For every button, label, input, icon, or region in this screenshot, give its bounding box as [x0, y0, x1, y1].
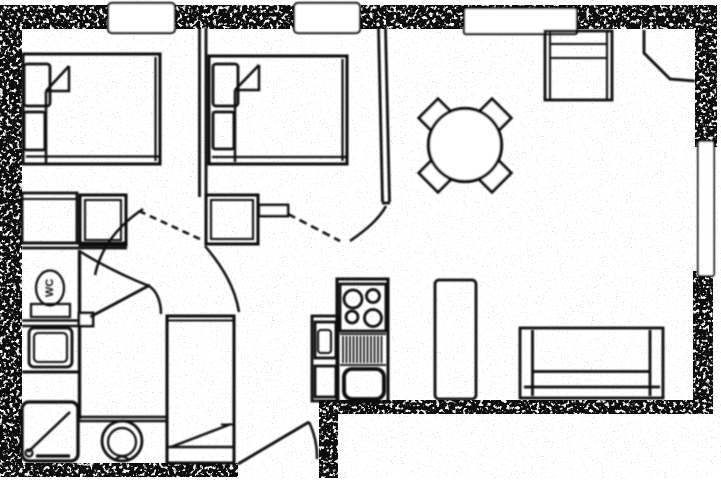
svg-text:WC: WC — [44, 279, 56, 297]
